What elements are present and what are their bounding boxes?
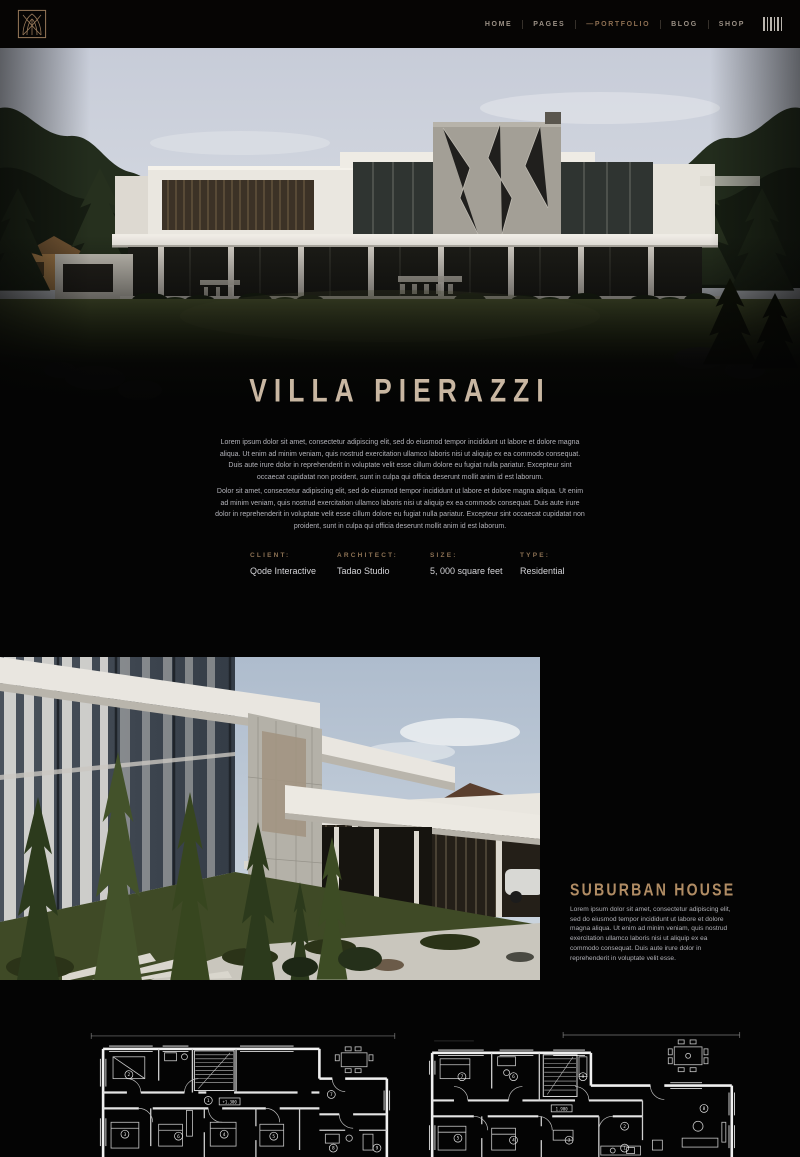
svg-text:2: 2 (623, 1124, 626, 1130)
floor-plan-left: 2 1 3 6 4 5 7 8 9 +1.300 (88, 1031, 398, 1157)
detail-label: TYPE: (520, 552, 572, 559)
project-paragraph-1: Lorem ipsum dolor sit amet, consectetur … (214, 437, 586, 483)
logo-arch-icon[interactable] (17, 9, 47, 39)
svg-text:1: 1 (207, 1098, 210, 1104)
svg-text:2: 2 (128, 1072, 131, 1078)
svg-text:4: 4 (223, 1132, 226, 1138)
svg-text:8: 8 (332, 1146, 335, 1152)
svg-text:9: 9 (376, 1146, 379, 1152)
nav-item-pages[interactable]: PAGES (533, 21, 565, 28)
detail-client: CLIENT: Qode Interactive (250, 552, 337, 576)
nav-divider (522, 20, 523, 29)
svg-text:9: 9 (582, 1074, 585, 1080)
floor-plan-right: 7 6 9 5 4 3 2 1 8 1.900 (413, 1031, 743, 1157)
main-nav: HOME PAGES —PORTFOLIO BLOG SHOP (485, 17, 800, 31)
detail-type: TYPE: Residential (520, 552, 572, 576)
level-label: +1.300 (222, 1099, 237, 1104)
svg-text:1: 1 (623, 1146, 626, 1152)
page-title: VILLA PIERAZZI (48, 374, 752, 411)
level-label: 1.900 (556, 1106, 569, 1111)
nav-divider (575, 20, 576, 29)
svg-text:5: 5 (457, 1136, 460, 1142)
detail-label: SIZE: (430, 552, 520, 559)
suburban-paragraph: Lorem ipsum dolor sit amet, consectetur … (570, 905, 738, 964)
hero-image-villa (0, 48, 800, 423)
project-paragraph-2: Dolor sit amet, consectetur adipiscing e… (214, 486, 586, 532)
menu-bars-icon[interactable] (763, 17, 782, 31)
nav-divider (708, 20, 709, 29)
nav-item-shop[interactable]: SHOP (719, 21, 745, 28)
detail-value: Qode Interactive (250, 566, 337, 576)
suburban-title: SUBURBAN HOUSE (570, 881, 735, 901)
detail-value: Tadao Studio (337, 566, 430, 576)
detail-size: SIZE: 5, 000 square feet (430, 552, 520, 576)
detail-architect: ARCHITECT: Tadao Studio (337, 552, 430, 576)
project-details: CLIENT: Qode Interactive ARCHITECT: Tada… (250, 552, 572, 576)
detail-label: ARCHITECT: (337, 552, 430, 559)
svg-text:5: 5 (272, 1134, 275, 1140)
svg-text:6: 6 (177, 1134, 180, 1140)
site-header: HOME PAGES —PORTFOLIO BLOG SHOP (0, 0, 800, 48)
nav-item-home[interactable]: HOME (485, 21, 512, 28)
svg-text:7: 7 (330, 1092, 333, 1098)
svg-text:6: 6 (512, 1074, 515, 1080)
svg-text:7: 7 (461, 1074, 464, 1080)
nav-item-portfolio[interactable]: —PORTFOLIO (586, 21, 650, 28)
portfolio-page: HOME PAGES —PORTFOLIO BLOG SHOP (0, 0, 800, 1157)
svg-text:3: 3 (124, 1132, 127, 1138)
svg-text:4: 4 (512, 1138, 515, 1144)
nav-item-blog[interactable]: BLOG (671, 21, 698, 28)
detail-value: 5, 000 square feet (430, 566, 520, 576)
suburban-house-image (0, 657, 540, 980)
svg-text:3: 3 (568, 1138, 571, 1144)
svg-text:8: 8 (703, 1106, 706, 1112)
detail-value: Residential (520, 566, 572, 576)
nav-divider (660, 20, 661, 29)
detail-label: CLIENT: (250, 552, 337, 559)
